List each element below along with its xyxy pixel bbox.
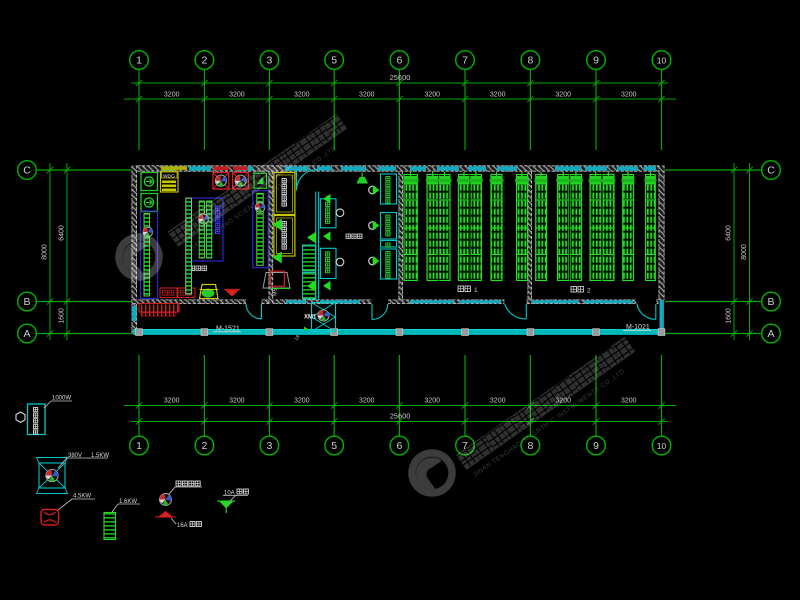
svg-text:16A: 16A — [177, 523, 188, 529]
svg-text:3200: 3200 — [229, 92, 245, 99]
svg-text:M5: M5 — [273, 288, 279, 296]
svg-text:8: 8 — [527, 55, 533, 67]
svg-text:3200: 3200 — [490, 398, 506, 405]
svg-text:WDG: WDG — [163, 173, 175, 179]
svg-text:A: A — [23, 328, 30, 340]
svg-text:1: 1 — [136, 55, 142, 67]
svg-text:C: C — [23, 165, 31, 177]
svg-text:2: 2 — [201, 55, 207, 67]
svg-text:6: 6 — [396, 440, 402, 452]
svg-text:8000: 8000 — [42, 244, 49, 260]
svg-text:3200: 3200 — [424, 398, 440, 405]
svg-text:3200: 3200 — [555, 92, 571, 99]
svg-text:2: 2 — [587, 288, 591, 295]
svg-text:8000: 8000 — [741, 244, 748, 260]
svg-text:3200: 3200 — [490, 92, 506, 99]
svg-text:5: 5 — [331, 440, 337, 452]
svg-text:3200: 3200 — [359, 92, 375, 99]
svg-text:1: 1 — [474, 287, 478, 294]
svg-text:3: 3 — [266, 440, 272, 452]
svg-text:6400: 6400 — [59, 225, 66, 241]
svg-text:C: C — [767, 165, 775, 177]
svg-text:3200: 3200 — [621, 398, 637, 405]
svg-text:B: B — [767, 296, 774, 308]
svg-text:6: 6 — [396, 55, 402, 67]
svg-text:XM1: XM1 — [304, 315, 317, 321]
svg-text:3200: 3200 — [621, 92, 637, 99]
svg-text:1600: 1600 — [726, 308, 733, 324]
svg-text:3200: 3200 — [164, 92, 180, 99]
svg-text:10: 10 — [657, 441, 667, 451]
svg-text:1600: 1600 — [59, 308, 66, 324]
svg-text:3200: 3200 — [424, 92, 440, 99]
svg-text:3200: 3200 — [229, 398, 245, 405]
svg-text:9: 9 — [593, 55, 599, 67]
svg-text:3200: 3200 — [294, 92, 310, 99]
svg-text:3200: 3200 — [359, 398, 375, 405]
svg-text:3200: 3200 — [294, 398, 310, 405]
svg-text:3200: 3200 — [164, 398, 180, 405]
svg-text:2: 2 — [201, 440, 207, 452]
svg-text:3: 3 — [266, 55, 272, 67]
svg-text:6400: 6400 — [726, 225, 733, 241]
svg-text:25600: 25600 — [390, 412, 411, 421]
svg-text:1: 1 — [136, 440, 142, 452]
svg-text:B: B — [23, 296, 30, 308]
svg-text:25600: 25600 — [390, 73, 411, 82]
svg-text:9: 9 — [593, 440, 599, 452]
svg-text:A: A — [767, 328, 774, 340]
svg-text:7: 7 — [462, 55, 468, 67]
svg-text:10: 10 — [657, 56, 667, 66]
svg-text:5: 5 — [331, 55, 337, 67]
